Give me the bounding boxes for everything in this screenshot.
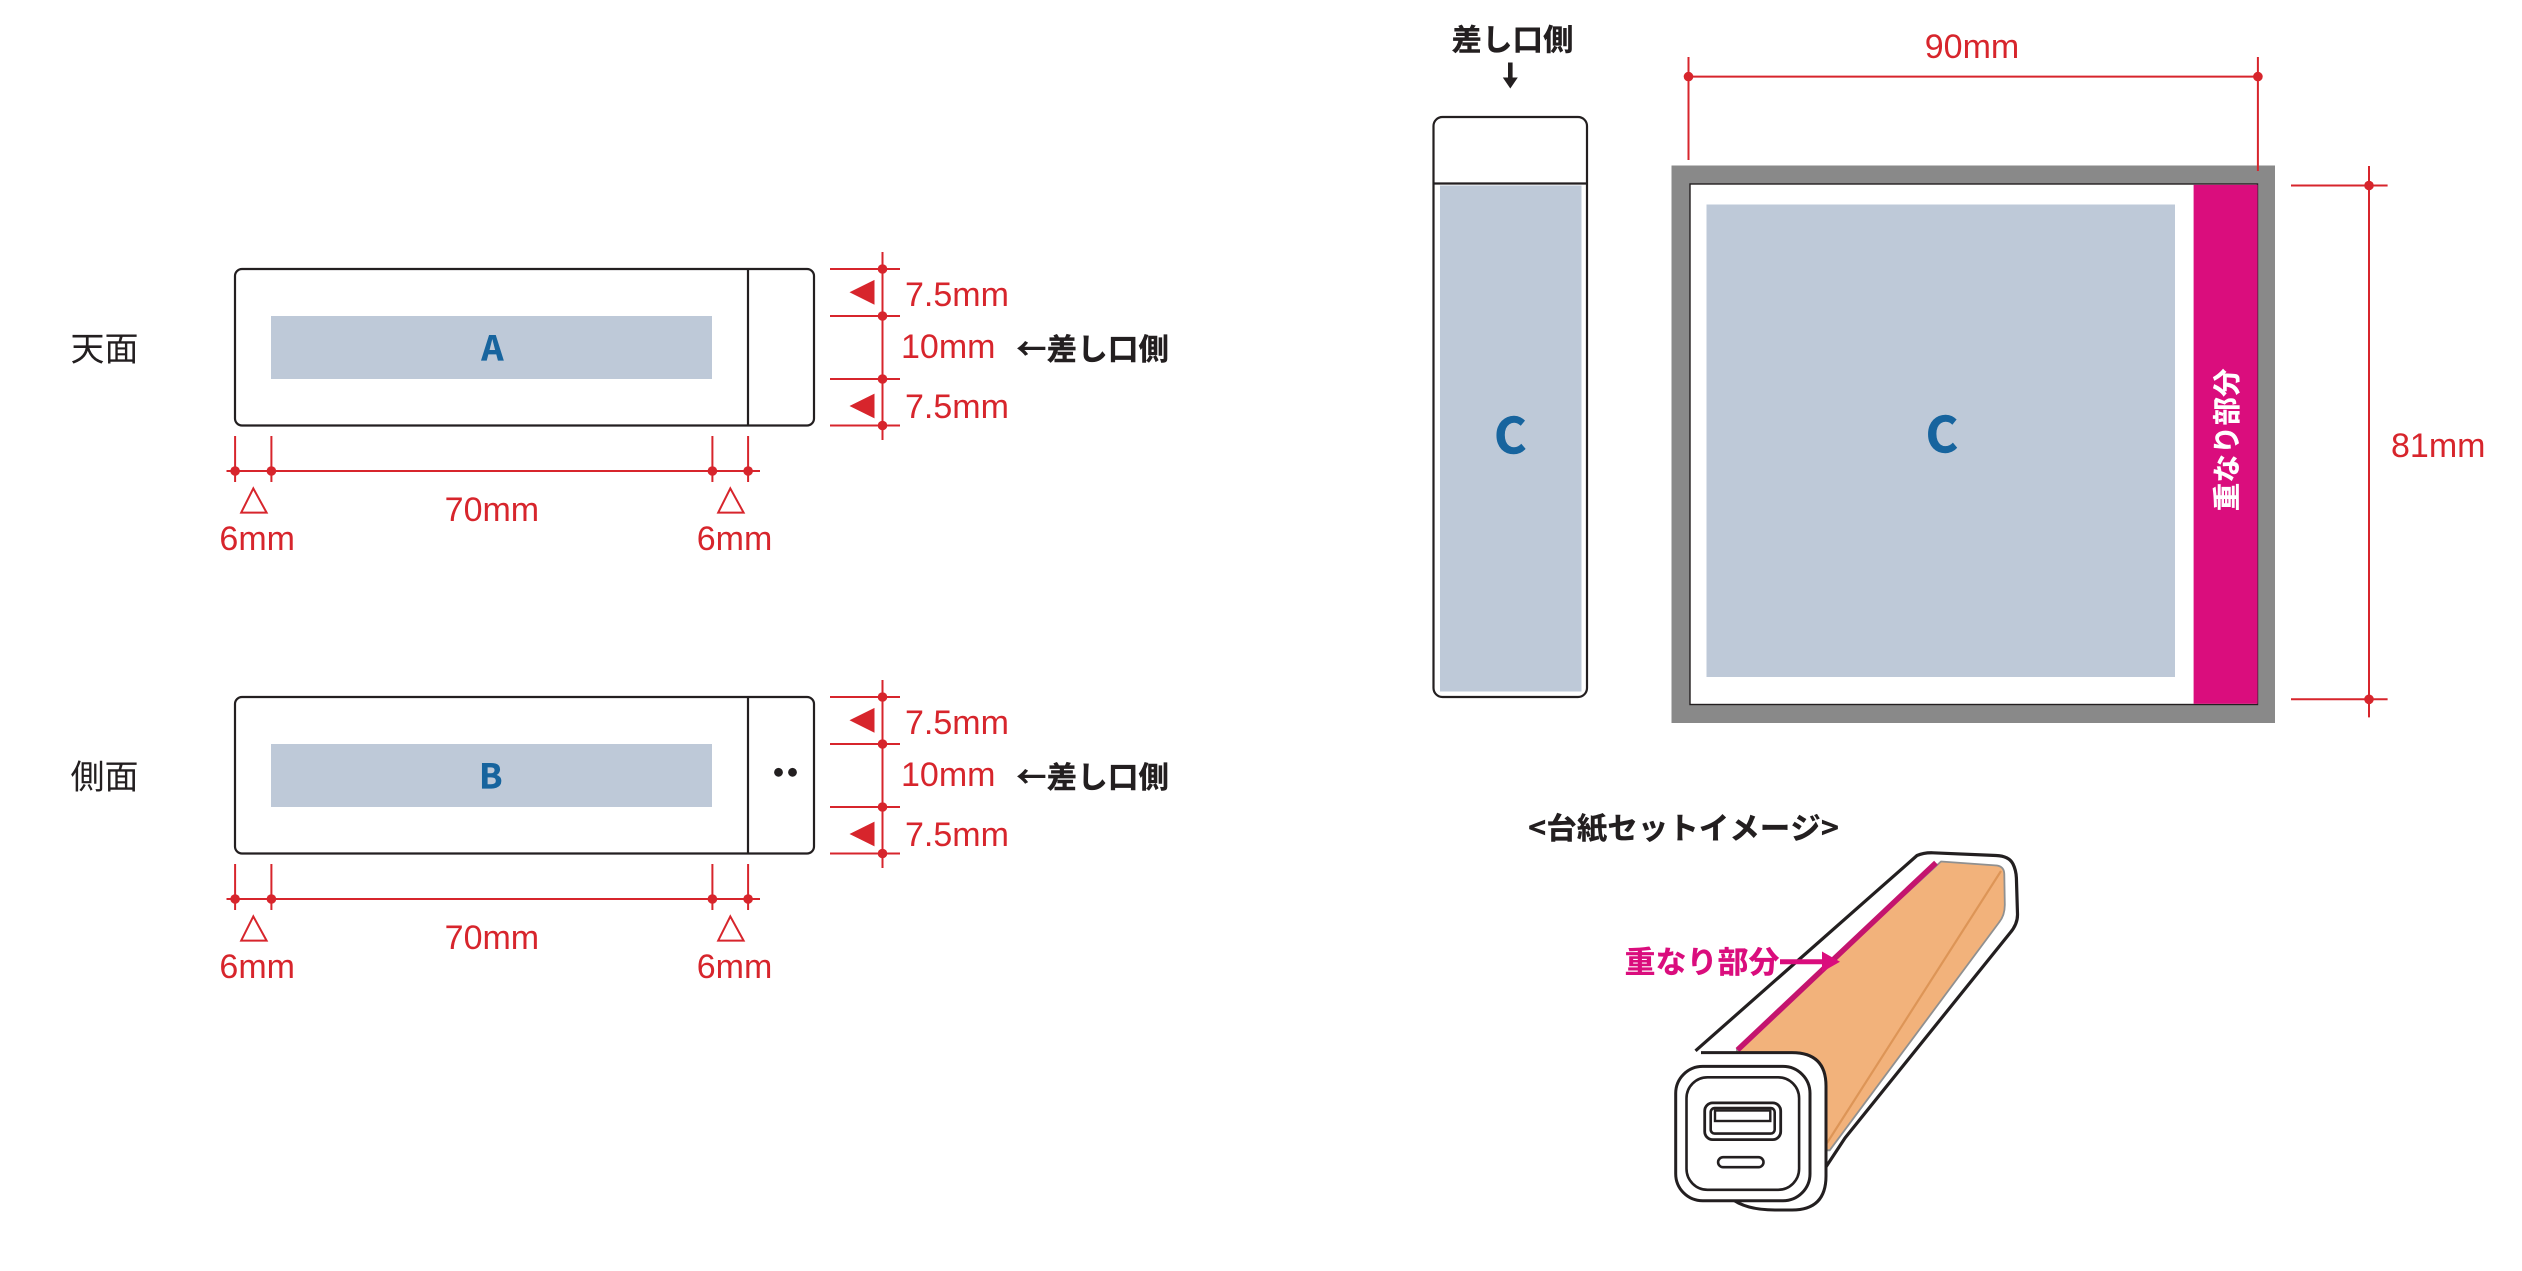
- svg-text:70mm: 70mm: [445, 919, 539, 957]
- svg-text:7.5mm: 7.5mm: [905, 704, 1009, 742]
- svg-text:10mm: 10mm: [901, 328, 995, 366]
- svg-text:6mm: 6mm: [219, 948, 295, 986]
- svg-text:6mm: 6mm: [697, 948, 773, 986]
- svg-text:6mm: 6mm: [697, 520, 773, 558]
- svg-text:70mm: 70mm: [445, 491, 539, 529]
- svg-text:7.5mm: 7.5mm: [905, 388, 1009, 426]
- svg-text:6mm: 6mm: [219, 520, 295, 558]
- svg-text:90mm: 90mm: [1925, 28, 2019, 66]
- svg-text:81mm: 81mm: [2391, 427, 2485, 465]
- svg-text:7.5mm: 7.5mm: [905, 816, 1009, 854]
- svg-text:7.5mm: 7.5mm: [905, 276, 1009, 314]
- svg-text:10mm: 10mm: [901, 756, 995, 794]
